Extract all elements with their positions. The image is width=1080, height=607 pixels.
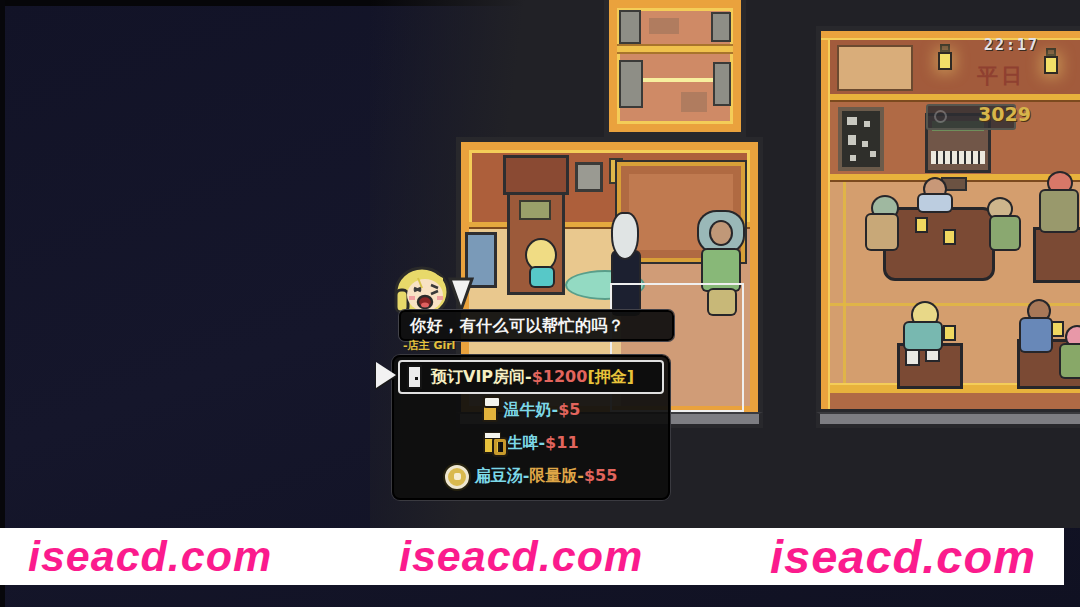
floor-stain xyxy=(681,92,707,112)
option-book-vip-room[interactable]: 预订VIP房间-$1200[押金] xyxy=(398,360,664,394)
piano-keys xyxy=(931,151,985,164)
soup-coin-icon xyxy=(445,465,469,489)
beer-mug xyxy=(917,219,926,231)
beer-mug xyxy=(945,231,954,243)
customer-body xyxy=(1061,345,1080,377)
upstairs-room xyxy=(604,0,746,137)
option-label: 生啤- xyxy=(506,433,545,452)
option-suffix: [押金] xyxy=(587,367,634,386)
customer-body xyxy=(919,195,951,211)
speech-tail-icon xyxy=(447,277,475,313)
guest-face xyxy=(711,222,731,244)
cup xyxy=(907,351,918,364)
square-table xyxy=(1033,227,1080,283)
option-label: 温牛奶- xyxy=(504,400,559,419)
customer-body xyxy=(1021,319,1051,351)
option-draft-beer[interactable]: 生啤-$11 xyxy=(398,427,664,460)
option-price: $5 xyxy=(558,400,580,419)
bulletin-board xyxy=(838,107,884,171)
dialogue-bubble: 你好，有什么可以帮忙的吗？ xyxy=(399,310,674,341)
option-price: $1200 xyxy=(532,367,588,386)
option-label: 预订VIP房间- xyxy=(431,367,532,386)
game-screenshot: 22:17 平日 3029 你好，有什么可以帮忙的吗？ -店主 Girl 预订V… xyxy=(0,0,1080,607)
customer-body xyxy=(1041,191,1077,231)
option-edition: 限量版- xyxy=(529,466,584,485)
bed-frame xyxy=(639,78,715,82)
coin-icon xyxy=(934,110,947,123)
beer-mug-icon xyxy=(483,434,500,454)
shopkeeper-body xyxy=(531,268,553,286)
wall-trim xyxy=(830,94,1080,102)
beer-mug xyxy=(1053,323,1062,335)
watermark-text: iseacd.com xyxy=(28,532,272,581)
floor-stain xyxy=(649,18,679,34)
wall-lamp-icon xyxy=(938,44,952,70)
tavern-room xyxy=(816,26,1080,414)
customer-head xyxy=(1029,301,1049,321)
door-icon xyxy=(407,365,422,389)
dialogue-options-menu: 预订VIP房间-$1200[押金] 温牛奶-$5 生啤-$11 扁豆汤-限量版-… xyxy=(392,355,670,500)
watermark-text: iseacd.com xyxy=(399,532,643,581)
option-lentil-soup[interactable]: 扁豆汤-限量版-$55 xyxy=(398,460,664,493)
customer-head xyxy=(989,199,1011,219)
room-gold-frame xyxy=(821,31,830,409)
money-value: 3029 xyxy=(978,103,1031,125)
furniture xyxy=(711,12,731,42)
left-edge-vignette xyxy=(0,0,5,607)
room-bottom-wall xyxy=(816,412,1080,428)
wall-lamp-icon xyxy=(1044,48,1058,74)
customer-head xyxy=(1067,327,1080,347)
wall-picture xyxy=(575,162,603,192)
floor-line xyxy=(843,182,846,383)
player-hair xyxy=(613,214,637,258)
day-type-label: 平日 xyxy=(977,62,1025,90)
furniture xyxy=(619,10,641,44)
watermark-text: iseacd.com xyxy=(770,529,1036,584)
option-warm-milk[interactable]: 温牛奶-$5 xyxy=(398,394,664,427)
customer-body xyxy=(905,323,941,349)
ledger-book xyxy=(519,200,551,220)
customer-body xyxy=(867,215,897,249)
option-price: $55 xyxy=(584,466,617,485)
wall-alcove xyxy=(837,45,913,91)
speaker-name-label: -店主 Girl xyxy=(403,338,455,353)
option-price: $11 xyxy=(545,433,578,452)
round-table xyxy=(883,207,995,281)
furniture xyxy=(713,62,731,106)
furniture xyxy=(619,60,643,108)
cabinet xyxy=(503,155,569,195)
shopkeeper-head xyxy=(527,240,555,270)
selection-arrow-icon xyxy=(376,362,396,388)
watermark-bar: iseacd.com iseacd.com iseacd.com xyxy=(0,528,1064,585)
customer-head xyxy=(1049,173,1071,193)
customer-body xyxy=(991,217,1019,249)
beer-mug xyxy=(945,327,954,339)
room-divider-wall xyxy=(617,44,733,54)
clock-display: 22:17 xyxy=(984,36,1039,54)
milk-mug-icon xyxy=(482,400,498,422)
room-gold-frame xyxy=(821,31,1080,40)
option-label: 扁豆汤- xyxy=(475,466,530,485)
